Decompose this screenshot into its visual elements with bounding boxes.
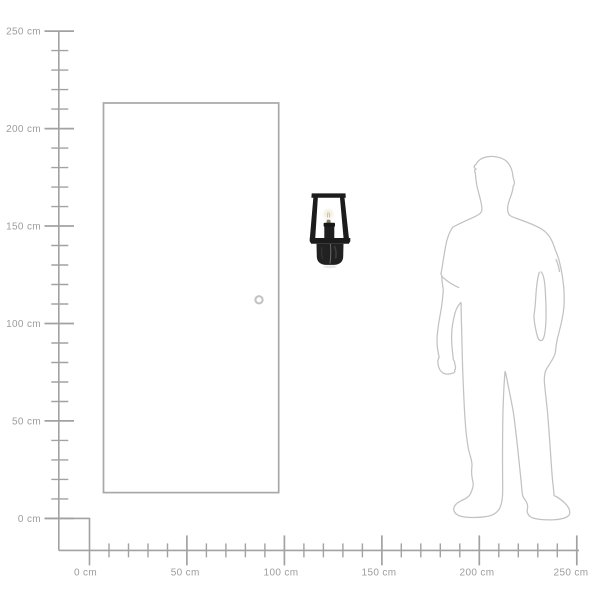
svg-text:150 cm: 150 cm bbox=[6, 222, 41, 233]
svg-text:100 cm: 100 cm bbox=[264, 568, 299, 579]
svg-text:0 cm: 0 cm bbox=[74, 568, 97, 579]
svg-text:250 cm: 250 cm bbox=[554, 568, 589, 579]
svg-text:250 cm: 250 cm bbox=[6, 27, 41, 38]
svg-text:200 cm: 200 cm bbox=[6, 124, 41, 135]
svg-text:100 cm: 100 cm bbox=[6, 319, 41, 330]
svg-text:50 cm: 50 cm bbox=[12, 417, 41, 428]
svg-text:150 cm: 150 cm bbox=[362, 568, 397, 579]
svg-text:0 cm: 0 cm bbox=[18, 514, 41, 525]
svg-text:200 cm: 200 cm bbox=[460, 568, 495, 579]
svg-text:50 cm: 50 cm bbox=[171, 568, 200, 579]
